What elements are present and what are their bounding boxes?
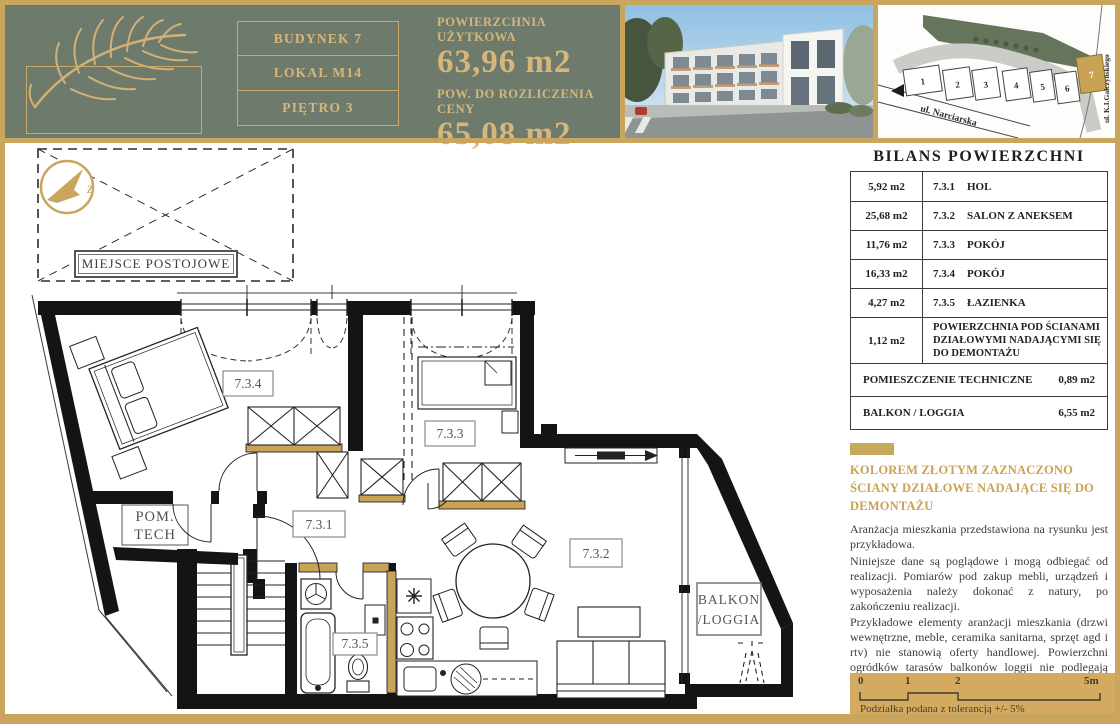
sofa-icon bbox=[557, 641, 665, 698]
balcony-label-1: BALKON bbox=[698, 592, 760, 607]
windows bbox=[181, 299, 512, 361]
wardrobe-icon bbox=[248, 407, 340, 445]
staircase bbox=[197, 555, 285, 655]
balance-table: 5,92 m2 7.3.1HOL 25,68 m2 7.3.2SALON Z A… bbox=[850, 171, 1108, 430]
balcony-window-wall bbox=[682, 448, 688, 684]
dining-table-icon bbox=[456, 544, 530, 618]
wardrobe-icon bbox=[443, 463, 521, 501]
balcony-label-2: /LOGGIA bbox=[698, 612, 761, 627]
price-area-label: POW. DO ROZLICZENIA CENY bbox=[437, 87, 620, 117]
north-arrow-icon bbox=[891, 84, 904, 97]
table-row-balcony: BALKON / LOGGIA 6,55 m2 bbox=[851, 396, 1107, 429]
flat-offer-sheet: BUDYNEK 7 LOKAL M14 PIĘTRO 3 POWIERZCHNI… bbox=[0, 0, 1120, 724]
parking-label: MIEJSCE POSTOJOWE bbox=[75, 251, 237, 277]
table-row: 25,68 m2 7.3.2SALON Z ANEKSEM bbox=[851, 201, 1107, 230]
balance-panel: BILANS POWIERZCHNI 5,92 m2 7.3.1HOL 25,6… bbox=[850, 148, 1108, 430]
floor-plan: z MIEJSCE POSTOJOWE bbox=[5, 143, 850, 719]
table-row: 16,33 m2 7.3.4POKÓJ bbox=[851, 259, 1107, 288]
wardrobe-icon bbox=[317, 452, 348, 498]
toilet-icon bbox=[347, 681, 369, 692]
usable-area-label: POWIERZCHNIA UŻYTKOWA bbox=[437, 15, 620, 45]
bottom-border bbox=[5, 714, 1115, 719]
balcony-symbol bbox=[738, 641, 766, 685]
building-photo bbox=[625, 5, 873, 138]
gold-swatch bbox=[850, 443, 894, 455]
legend: KOLOREM ZŁOTYM ZAZNACZONO ŚCIANY DZIAŁOW… bbox=[850, 443, 1108, 692]
tech-room-label-2: TECH bbox=[134, 527, 176, 543]
compass-icon: z bbox=[41, 161, 94, 213]
table-row-walls: 1,12 m2 POWIERZCHNIA POD ŚCIANAMI DZIAŁO… bbox=[851, 317, 1107, 363]
logo-frame bbox=[26, 66, 202, 134]
disclaimer-paragraph: Niniejsze dane są poglądowe i mogą odbie… bbox=[850, 554, 1108, 614]
tech-room-label-1: POM. bbox=[135, 509, 174, 525]
balcony: BALKON /LOGGIA bbox=[697, 583, 766, 685]
site-map: 1 2 3 4 5 6 7 ul. Narciarska ul. K.I.Gał… bbox=[878, 5, 1115, 138]
table-row-tech: POMIESZCZENIE TECHNICZNE 0,89 m2 bbox=[851, 363, 1107, 396]
usable-area-value: 63,96 m2 bbox=[437, 45, 620, 81]
table-row: 5,92 m2 7.3.1HOL bbox=[851, 172, 1107, 201]
compass-letter: z bbox=[86, 180, 94, 197]
tech-room: POM. TECH bbox=[113, 505, 238, 565]
disclaimer-paragraph: Aranżacja mieszkania przedstawiona na ry… bbox=[850, 522, 1108, 552]
room-label-732: 7.3.2 bbox=[583, 546, 610, 561]
building-badge: BUDYNEK 7 bbox=[237, 21, 399, 56]
scale-bar-panel: 0 1 2 5m Podziałka podana z tolerancją +… bbox=[850, 673, 1115, 719]
table-row: 4,27 m2 7.3.5ŁAZIENKA bbox=[851, 288, 1107, 317]
street-side-label: ul. K.I.Gałczyńskiego bbox=[1102, 54, 1111, 123]
floor-badge: PIĘTRO 3 bbox=[237, 91, 399, 126]
svg-text:MIEJSCE POSTOJOWE: MIEJSCE POSTOJOWE bbox=[82, 256, 231, 271]
table-row: 11,76 m2 7.3.3POKÓJ bbox=[851, 230, 1107, 259]
legend-heading: KOLOREM ZŁOTYM ZAZNACZONO ŚCIANY DZIAŁOW… bbox=[850, 461, 1108, 515]
room-label-733: 7.3.3 bbox=[437, 426, 464, 441]
room-label-731: 7.3.1 bbox=[306, 517, 333, 532]
street-main-label: ul. Narciarska bbox=[919, 104, 978, 129]
kitchen-sink-icon bbox=[404, 667, 436, 691]
double-bed-icon bbox=[70, 301, 239, 479]
wardrobe-icon bbox=[361, 459, 403, 495]
header-panel: BUDYNEK 7 LOKAL M14 PIĘTRO 3 POWIERZCHNI… bbox=[5, 5, 620, 138]
room-label-734: 7.3.4 bbox=[235, 376, 262, 391]
balance-title: BILANS POWIERZCHNI bbox=[850, 148, 1108, 166]
window-swing-arcs bbox=[181, 318, 512, 361]
unit-badge: LOKAL M14 bbox=[237, 56, 399, 91]
room-label-735: 7.3.5 bbox=[342, 636, 369, 651]
coffee-table-icon bbox=[578, 607, 640, 637]
